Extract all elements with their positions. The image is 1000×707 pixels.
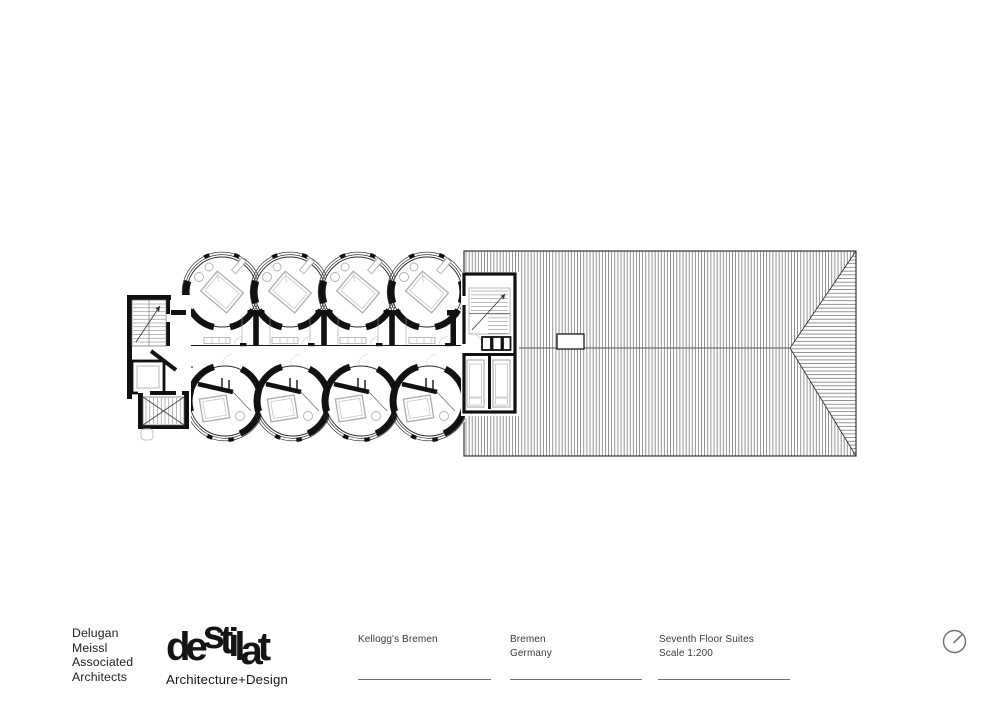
location-line: Germany xyxy=(510,647,552,661)
roof-plan xyxy=(464,251,856,456)
architect-line: Delugan xyxy=(72,626,133,641)
project-name-text: Kellogg's Bremen xyxy=(358,633,438,647)
title-block-rule xyxy=(358,679,491,680)
architect-line: Associated xyxy=(72,655,133,670)
logo-letter: e xyxy=(185,627,202,667)
roof-skylight xyxy=(557,334,584,349)
project-location: Bremen Germany xyxy=(510,633,552,661)
location-line: Bremen xyxy=(510,633,552,647)
logo-letter: a xyxy=(241,631,258,671)
drawing-sheet: Delugan Meissl Associated Architects des… xyxy=(0,0,1000,707)
logo-letter: d xyxy=(166,627,185,667)
north-indicator-icon xyxy=(942,629,968,655)
logo-letter: s xyxy=(203,615,220,655)
logo-letter: t xyxy=(258,627,266,667)
destilat-logo: destilat Architecture+Design xyxy=(166,624,296,687)
logo-letter: t xyxy=(220,620,228,660)
architect-line: Meissl xyxy=(72,641,133,656)
sheet-title-text: Seventh Floor Suites xyxy=(659,633,754,647)
project-name: Kellogg's Bremen xyxy=(358,633,438,647)
title-block-rule xyxy=(658,679,790,680)
suites-and-cores xyxy=(127,251,519,442)
sheet-scale-text: Scale 1:200 xyxy=(659,647,754,661)
sheet-title: Seventh Floor Suites Scale 1:200 xyxy=(659,633,754,661)
title-block-rule xyxy=(510,679,642,680)
architect-name: Delugan Meissl Associated Architects xyxy=(72,626,133,684)
architect-line: Architects xyxy=(72,670,133,685)
logo-tagline: Architecture+Design xyxy=(166,672,296,687)
floor-plan-drawing xyxy=(0,0,1000,707)
destilat-wordmark: destilat xyxy=(166,624,296,670)
